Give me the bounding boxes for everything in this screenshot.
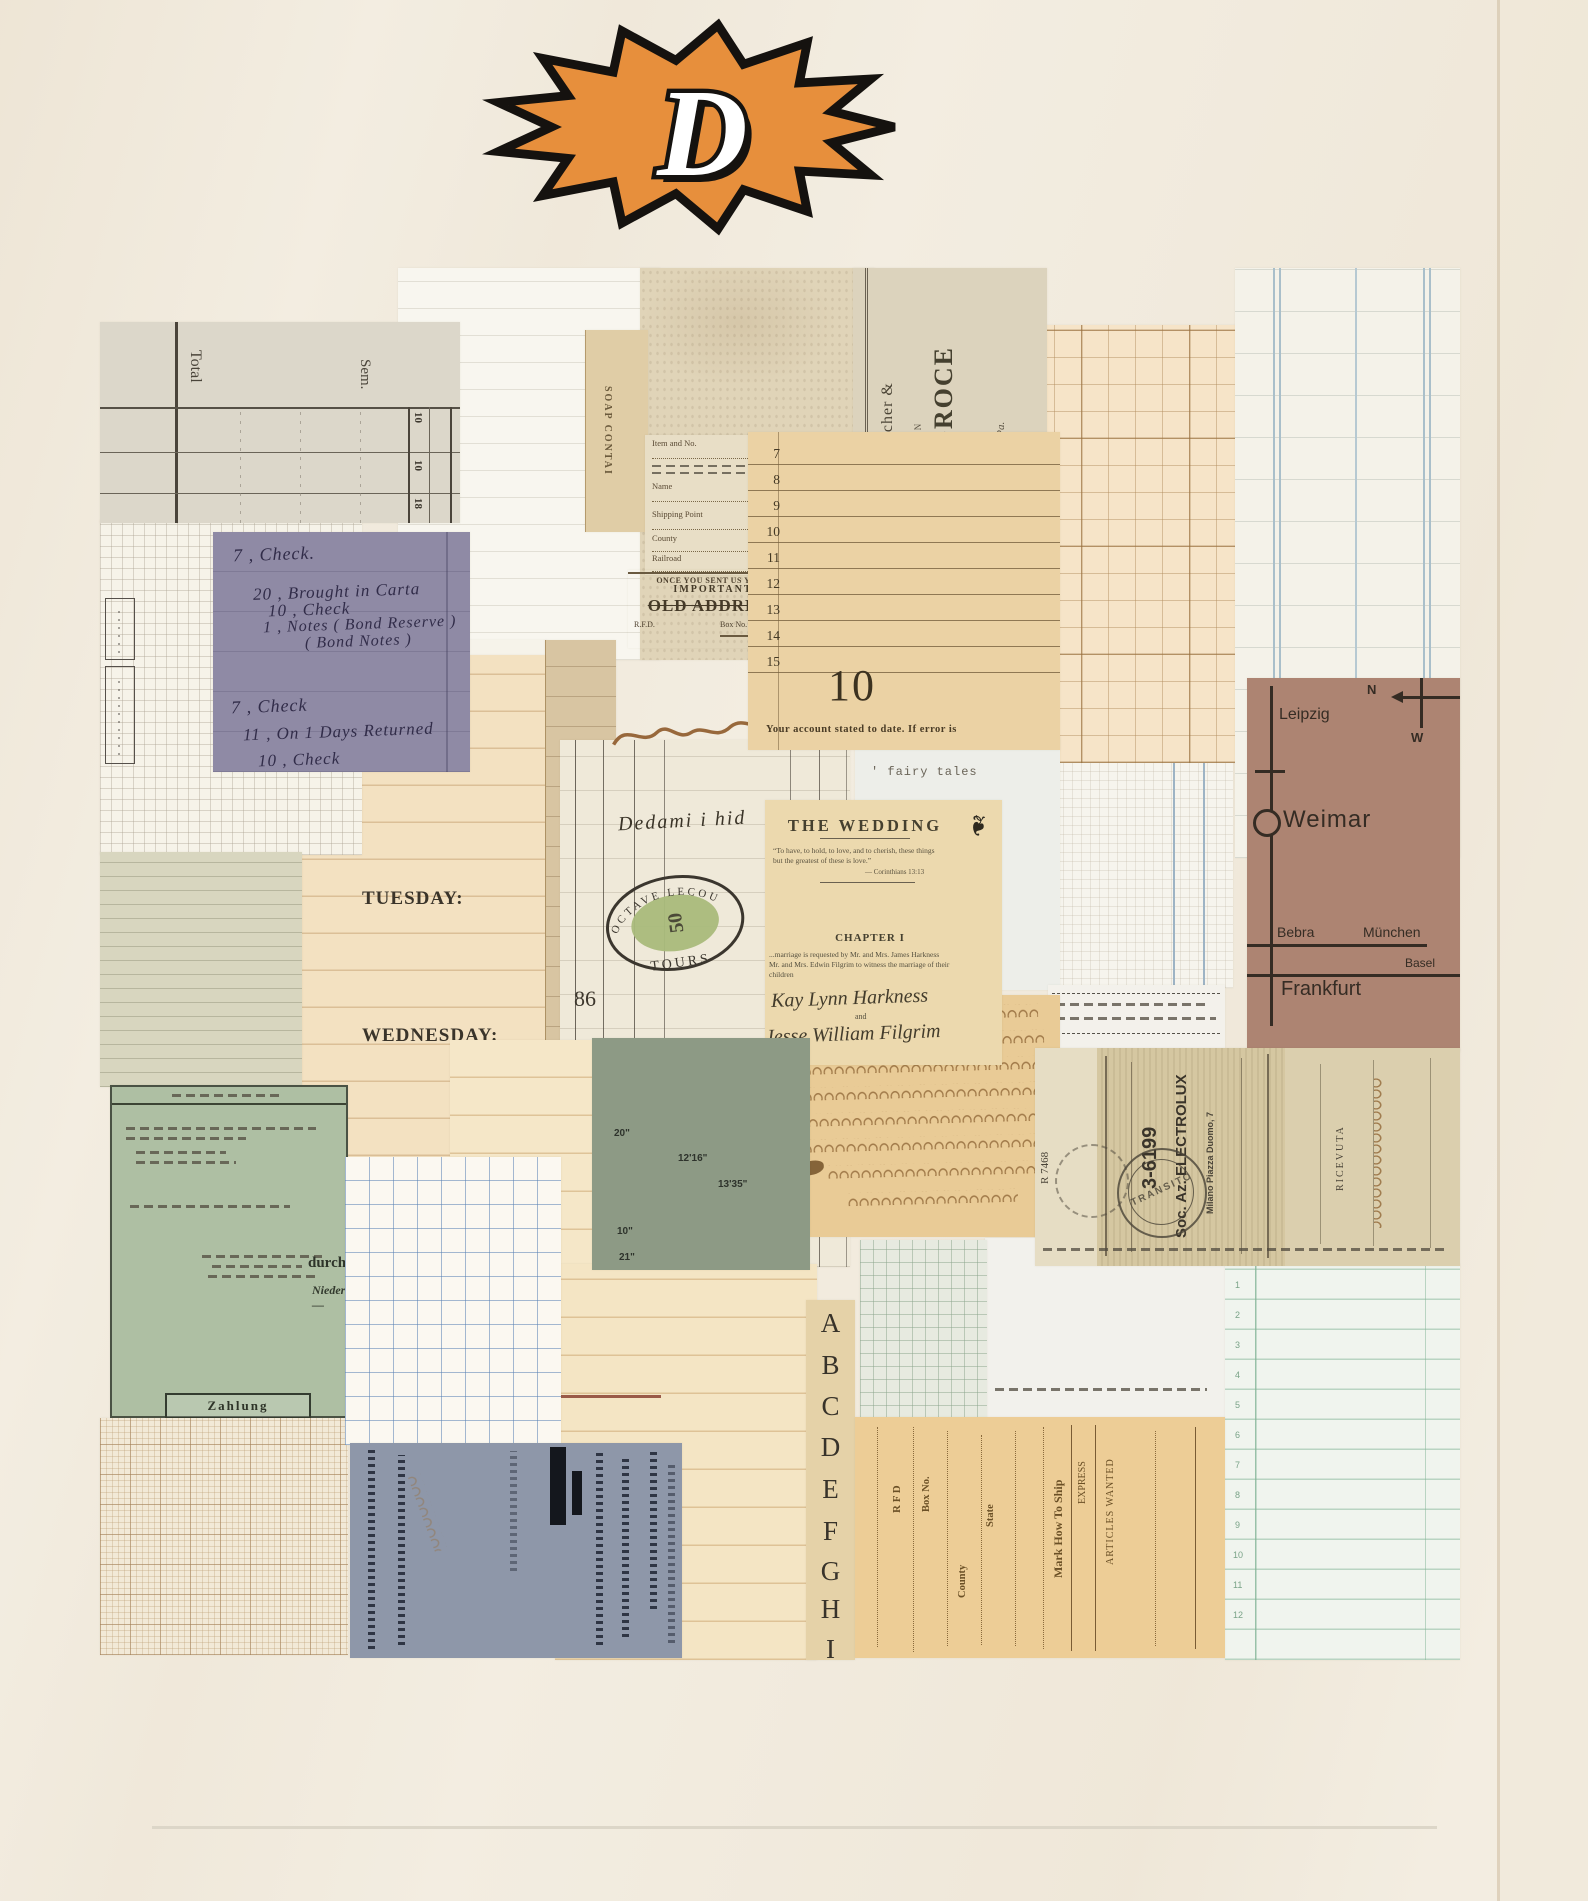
- map-compass-vline: [1420, 678, 1423, 728]
- receipt-nieder: Nieder—: [312, 1283, 346, 1313]
- invoice-redaction-bar: [572, 1471, 582, 1515]
- statement-row-num: 9: [760, 498, 780, 514]
- paper-sage-lined: [100, 852, 302, 1087]
- statement-row-num: 8: [760, 472, 780, 488]
- paper-map-weimar: Leipzig N W Weimar Bebra München Basel F…: [1247, 678, 1460, 1052]
- map-compass-arrow: [1391, 691, 1403, 703]
- paper-gray-ledger: Total Sem. 10 10 18: [100, 322, 460, 523]
- wedding-para1: ...marriage is requested by Mr. and Mrs.…: [769, 950, 994, 959]
- ledger-label-total: Total: [186, 326, 204, 406]
- stamp-value: 50: [664, 911, 689, 934]
- map-tick-leipzig: [1255, 770, 1285, 773]
- statement-row: 7: [748, 438, 1060, 465]
- sage-measure-3: 13'35": [718, 1179, 747, 1190]
- ledger-num-3: 18: [412, 498, 424, 522]
- elx-rule-4: [1267, 1054, 1269, 1258]
- green-row-num: 7: [1235, 1460, 1240, 1470]
- wedding-and: and: [855, 1012, 867, 1021]
- map-label-basel: Basel: [1405, 956, 1435, 970]
- green-row-num: 11: [1233, 1580, 1242, 1590]
- statement-row-num: 12: [760, 576, 780, 592]
- receipt-row-2: [126, 1137, 246, 1140]
- grid-label-box-2: [105, 666, 135, 764]
- map-label-frankfurt: Frankfurt: [1281, 978, 1361, 1001]
- green-row-num: 5: [1235, 1400, 1240, 1410]
- statement-row-num: 7: [760, 446, 780, 462]
- paper-bluegray-invoice: [350, 1443, 682, 1658]
- invoice-text-column: [510, 1451, 517, 1571]
- typed-row-2: [1056, 1017, 1216, 1020]
- handwriting-row: [780, 1082, 1046, 1102]
- order-dotted-col: [1043, 1427, 1044, 1649]
- invoice-redaction-bar: [550, 1447, 566, 1525]
- elx-postmark: TRANSITO: [1117, 1148, 1207, 1238]
- paper-green-grid-small: [860, 1240, 987, 1432]
- paper-order-form: R F D Box No. State County Mark How To S…: [855, 1417, 1225, 1658]
- green-row-num: 3: [1235, 1340, 1240, 1350]
- map-label-w: W: [1411, 730, 1423, 745]
- sage-measure-1: 20": [614, 1128, 630, 1139]
- wedding-name1: Kay Lynn Harkness: [771, 982, 1002, 1013]
- micro-text-row: [995, 1388, 1207, 1391]
- product-image: D D TUESDAY: WEDNESDAY: Applebee, Fische…: [0, 0, 1588, 1901]
- grid-label-box-1: [105, 598, 135, 660]
- green-row-num: 1: [1235, 1280, 1240, 1290]
- purple-entry: 7 , Check.: [233, 543, 316, 567]
- order-dotted-col: [981, 1435, 982, 1645]
- sage-measure-5: 21": [619, 1252, 635, 1263]
- ledger-label-sem: Sem.: [356, 342, 373, 406]
- paper-green-ledger: 1 2 3 4 5 6 7 8 9 10 11 12: [1225, 1264, 1460, 1660]
- ledger-dashed-cols: [100, 407, 460, 523]
- map-label-leipzig: Leipzig: [1279, 706, 1330, 724]
- elx-serial: R 7468: [1039, 1108, 1051, 1228]
- paper-purple-note: 7 , Check. 20 , Brought in Carta 10 , Ch…: [213, 532, 470, 772]
- wedding-title-rule: [820, 838, 910, 839]
- starburst-icon: D D: [478, 8, 914, 246]
- bottom-divider: [152, 1826, 1437, 1829]
- wedding-para3: children: [769, 970, 994, 979]
- receipt-row-3: [136, 1151, 226, 1154]
- statement-footer: Your account stated to date. If error is: [766, 724, 957, 735]
- green-row-num: 9: [1235, 1520, 1240, 1530]
- alphabet-letter: D: [806, 1432, 855, 1463]
- green-row-num: 4: [1235, 1370, 1240, 1380]
- elx-script: [1374, 1078, 1387, 1228]
- elx-label: RICEVUTA: [1335, 1068, 1346, 1248]
- elx-rule-7: [1430, 1058, 1431, 1248]
- paper-statement: 7 8 9 10 11 12 13 14 15 10 Your account …: [748, 432, 1060, 750]
- order-express: EXPRESS: [1077, 1435, 1088, 1530]
- statement-row-num: 11: [760, 550, 780, 566]
- paper-soap-strip: SOAP CONTAI: [585, 330, 648, 532]
- order-dotted-col: [877, 1427, 878, 1647]
- receipt-row-8: [208, 1275, 318, 1278]
- wedding-para2: Mr. and Mrs. Edwin Filgrim to witness th…: [769, 960, 994, 969]
- order-dotted-col: [913, 1427, 914, 1652]
- green-row-num: 2: [1235, 1310, 1240, 1320]
- postmark-icon: OCTAVE LECOU 50 TOURS: [593, 858, 757, 986]
- statement-big-number: 10: [828, 660, 876, 711]
- alphabet-letter: B: [806, 1350, 855, 1381]
- wedding-quote1: “To have, to hold, to love, and to cheri…: [773, 846, 963, 855]
- wedding-quote2: but the greatest of these is love.”: [773, 856, 963, 865]
- elx-rule-5: [1320, 1064, 1321, 1244]
- green-row-num: 8: [1235, 1490, 1240, 1500]
- statement-row: 9: [748, 490, 1060, 517]
- map-hline-bebra: [1247, 944, 1427, 947]
- receipt-header-text: [172, 1094, 282, 1097]
- handwriting-row: [786, 1108, 1042, 1128]
- paper-alphabet-strip: A B C D E F G H I: [806, 1300, 855, 1660]
- variant-badge: D D: [478, 8, 914, 246]
- receipt-zahlung-text: Zahlung: [208, 1398, 269, 1413]
- statement-row: 11: [748, 542, 1060, 569]
- paper-electrolux-receipt: R 7468 3-6199 Soc. Az. ELECTROLUX Milano…: [1035, 1048, 1460, 1266]
- alphabet-letter: C: [806, 1391, 855, 1422]
- receipt-zahlung-box: Zahlung: [165, 1393, 311, 1419]
- elx-footer-microtext: [1043, 1248, 1448, 1251]
- wedding-chapter: CHAPTER I: [765, 932, 975, 944]
- postmark-stamp: OCTAVE LECOU 50 TOURS: [593, 858, 757, 986]
- statement-row: 12: [748, 568, 1060, 595]
- order-rfd: R F D: [891, 1462, 903, 1537]
- order-state: State: [985, 1485, 996, 1547]
- paper-receipt-typed: [1048, 985, 1225, 1053]
- receipt-row-5: [130, 1205, 290, 1208]
- green-row-num: 12: [1233, 1610, 1243, 1620]
- paper-graph: [100, 1418, 348, 1655]
- paper-blue-grid: [345, 1157, 561, 1445]
- soap-text: SOAP CONTAI: [602, 336, 613, 526]
- invoice-script: [408, 1473, 448, 1553]
- sage-measure-2: 12'16": [678, 1153, 707, 1164]
- handwriting-row: [780, 1134, 1042, 1154]
- receipt-row-6: [202, 1255, 322, 1258]
- stamp-bottom-text: TOURS: [650, 951, 712, 974]
- invoice-text-column: [622, 1457, 629, 1637]
- statement-row: 10: [748, 516, 1060, 543]
- wedding-quote-attr: — Corinthians 13:13: [865, 868, 965, 876]
- central-page-number: 86: [574, 986, 596, 1012]
- map-weimar-circle: [1253, 809, 1281, 837]
- wedding-title: THE WEDDING: [765, 816, 965, 836]
- map-label-weimar: Weimar: [1283, 806, 1371, 834]
- fairy-text: ' fairy tales: [871, 765, 978, 779]
- order-box-no: Box No.: [921, 1452, 932, 1537]
- green-row-num: 10: [1233, 1550, 1243, 1560]
- map-hline-frankfurt: [1247, 974, 1460, 977]
- typed-rule-1: [1052, 993, 1220, 994]
- map-label-bebra: Bebra: [1277, 924, 1314, 940]
- order-solid-col: [1195, 1427, 1196, 1649]
- paper-german-receipt: durch Nieder— Zahlung: [110, 1085, 348, 1418]
- handwriting-row: [848, 1189, 1018, 1206]
- alphabet-letter: G: [806, 1556, 855, 1587]
- order-dotted-col: [1015, 1431, 1016, 1646]
- order-solid-col: [1095, 1425, 1096, 1651]
- alphabet-letter: E: [806, 1474, 855, 1505]
- receipt-row-7: [212, 1265, 302, 1268]
- handwriting-row: [828, 1160, 1042, 1179]
- alphabet-letter: H: [806, 1594, 855, 1625]
- central-handwriting: Dedami i hid: [617, 807, 746, 837]
- order-county: County: [957, 1545, 968, 1617]
- invoice-text-column: [650, 1449, 657, 1609]
- alphabet-letter: I: [806, 1634, 855, 1665]
- order-articles: ARTICLES WANTED: [1105, 1452, 1116, 1572]
- diary-tuesday: TUESDAY:: [362, 888, 464, 910]
- statement-row-num: 10: [760, 524, 780, 540]
- paper-wedding: THE WEDDING ❧ “To have, to hold, to love…: [765, 800, 1002, 1065]
- green-row-num: 6: [1235, 1430, 1240, 1440]
- invoice-text-column: [596, 1449, 603, 1645]
- alphabet-letter: F: [806, 1516, 855, 1547]
- map-label-muenchen: München: [1363, 924, 1421, 940]
- statement-row: 15: [748, 646, 1060, 673]
- order-dotted-col: [1155, 1431, 1156, 1646]
- old-address-rfd: R.F.D.: [634, 620, 655, 629]
- statement-row: 14: [748, 620, 1060, 647]
- invoice-text-column: [368, 1449, 375, 1649]
- paper-sage-card: 20" 12'16" 13'35" 10" 21": [592, 1038, 810, 1270]
- wedding-quote-rule: [820, 882, 915, 883]
- receipt-row-4: [136, 1161, 236, 1164]
- statement-row-num: 13: [760, 602, 780, 618]
- ledger-num-2: 10: [412, 460, 424, 496]
- typed-row-1: [1056, 1003, 1206, 1006]
- marble-right-zone: [1500, 0, 1588, 1901]
- maroon-rule: [555, 1395, 661, 1398]
- purple-entry: 10 , Check: [258, 749, 341, 772]
- typed-rule-2: [1052, 1033, 1220, 1034]
- statement-row-num: 14: [760, 628, 780, 644]
- form-fineprint-2: [652, 472, 762, 474]
- order-dotted-col: [947, 1431, 948, 1646]
- receipt-durch: durch: [308, 1255, 346, 1272]
- statement-row: 13: [748, 594, 1060, 621]
- order-ship: Mark How To Ship: [1051, 1459, 1066, 1599]
- sage-measure-4: 10": [617, 1226, 633, 1237]
- elx-postmark-partial: [1055, 1144, 1129, 1218]
- wedding-ornament-icon: ❧: [960, 813, 995, 838]
- ledger-num-1: 10: [412, 412, 424, 448]
- purple-entry: 11 , On 1 Days Returned: [243, 719, 434, 746]
- purple-entry: ( Bond Notes ): [305, 631, 412, 653]
- paper-blue-column-mid: [1045, 763, 1233, 988]
- elx-address: Milano Piazza Duomo, 7: [1205, 1078, 1215, 1248]
- order-solid-col: [1071, 1425, 1072, 1651]
- receipt-header-rule: [112, 1103, 346, 1105]
- invoice-text-column: [668, 1463, 675, 1643]
- badge-letter: D: [656, 64, 748, 203]
- statement-row-num: 15: [760, 654, 780, 670]
- purple-entry: 7 , Check: [231, 695, 308, 719]
- alphabet-letter: A: [806, 1308, 855, 1339]
- statement-row: 8: [748, 464, 1060, 491]
- map-compass-hline: [1402, 696, 1460, 699]
- map-label-n: N: [1367, 682, 1376, 697]
- invoice-text-column: [398, 1455, 405, 1645]
- receipt-row-1: [126, 1127, 316, 1130]
- elx-rule-3: [1241, 1058, 1242, 1254]
